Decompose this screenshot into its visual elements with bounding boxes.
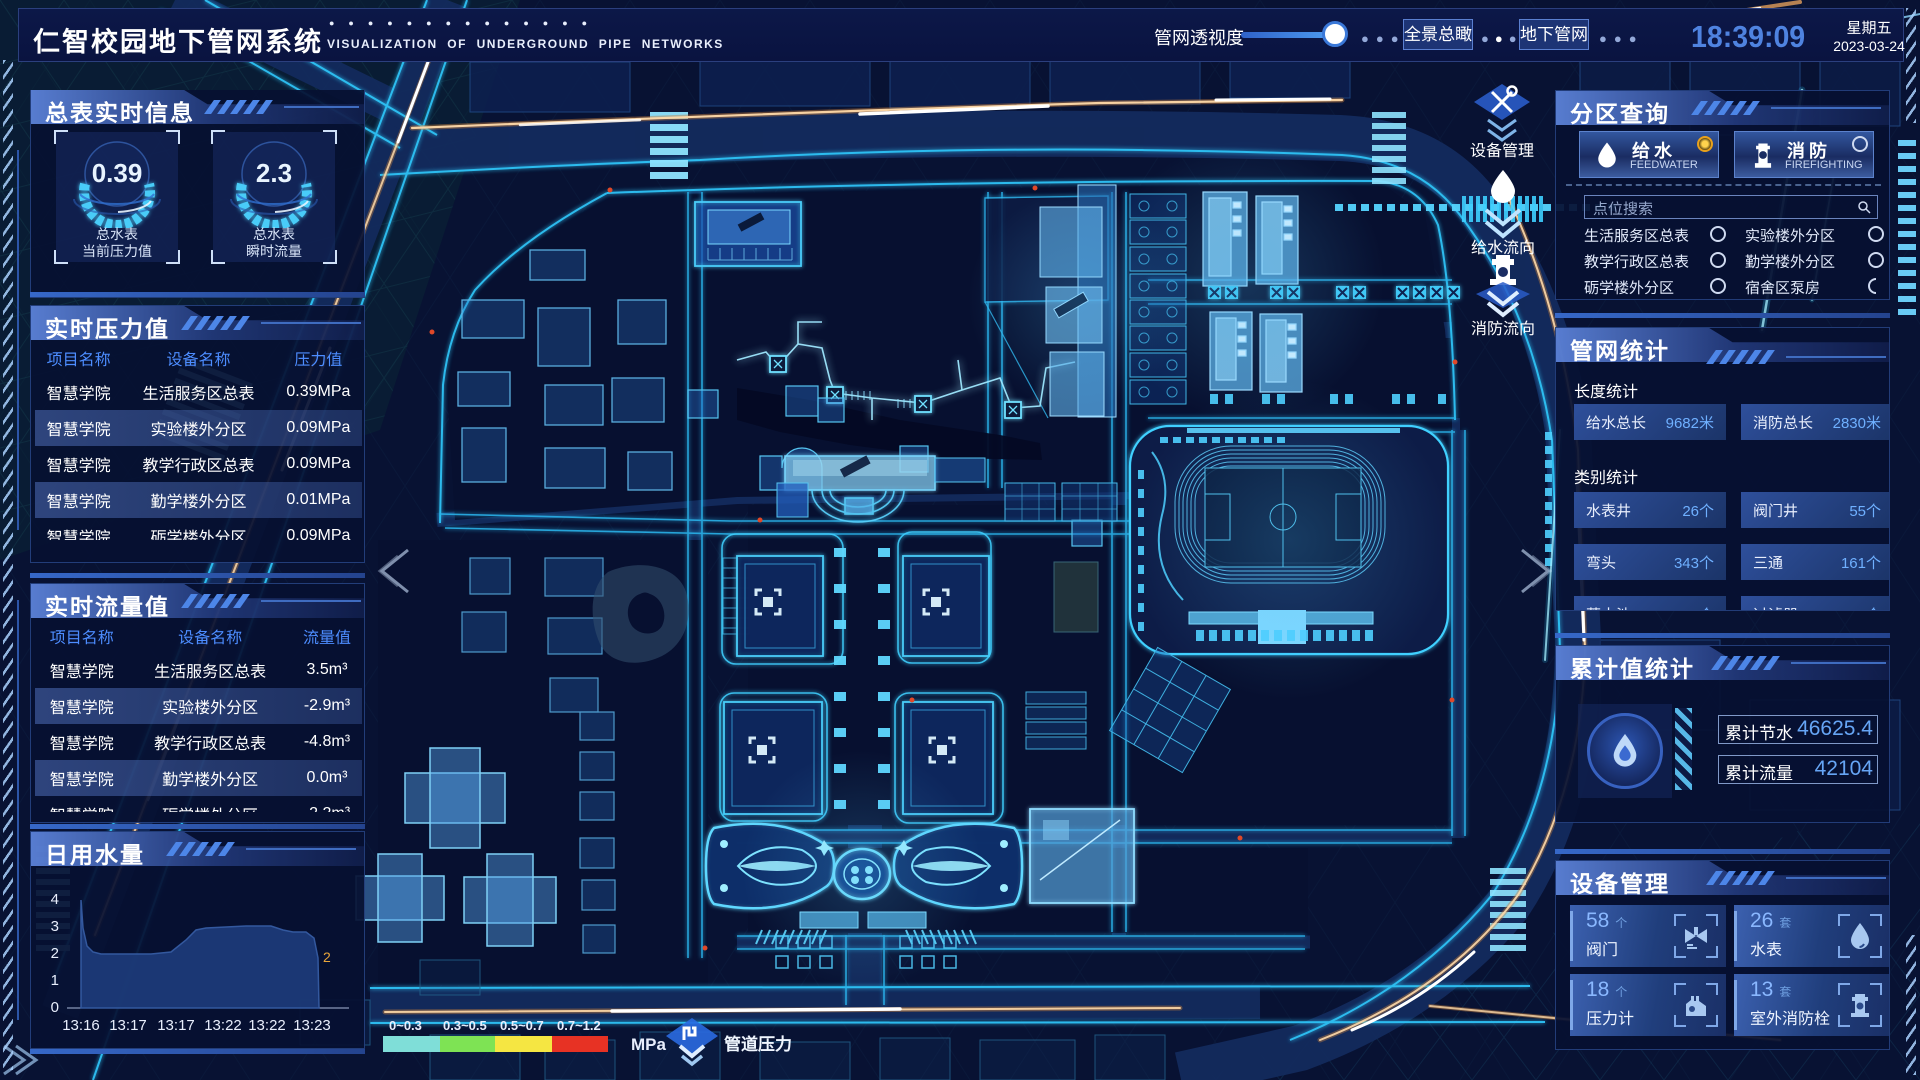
svg-text:给水流向: 给水流向 <box>1471 239 1535 257</box>
svg-text:1: 1 <box>51 972 59 989</box>
svg-text:2: 2 <box>323 949 331 965</box>
svg-text:0.39: 0.39 <box>92 158 143 188</box>
svg-text:2.3: 2.3 <box>256 158 292 188</box>
svg-text:13:22: 13:22 <box>248 1017 286 1034</box>
svg-text:13:17: 13:17 <box>157 1017 195 1034</box>
svg-text:0: 0 <box>51 999 59 1016</box>
svg-text:设备管理: 设备管理 <box>1470 142 1534 160</box>
svg-text:13:23: 13:23 <box>293 1017 331 1034</box>
svg-text:13:16: 13:16 <box>62 1017 100 1034</box>
svg-text:消防流向: 消防流向 <box>1471 320 1535 338</box>
svg-text:13:17: 13:17 <box>109 1017 147 1034</box>
svg-text:4: 4 <box>51 891 59 908</box>
svg-text:3: 3 <box>51 918 59 935</box>
svg-text:13:22: 13:22 <box>204 1017 242 1034</box>
svg-text:2: 2 <box>51 945 59 962</box>
